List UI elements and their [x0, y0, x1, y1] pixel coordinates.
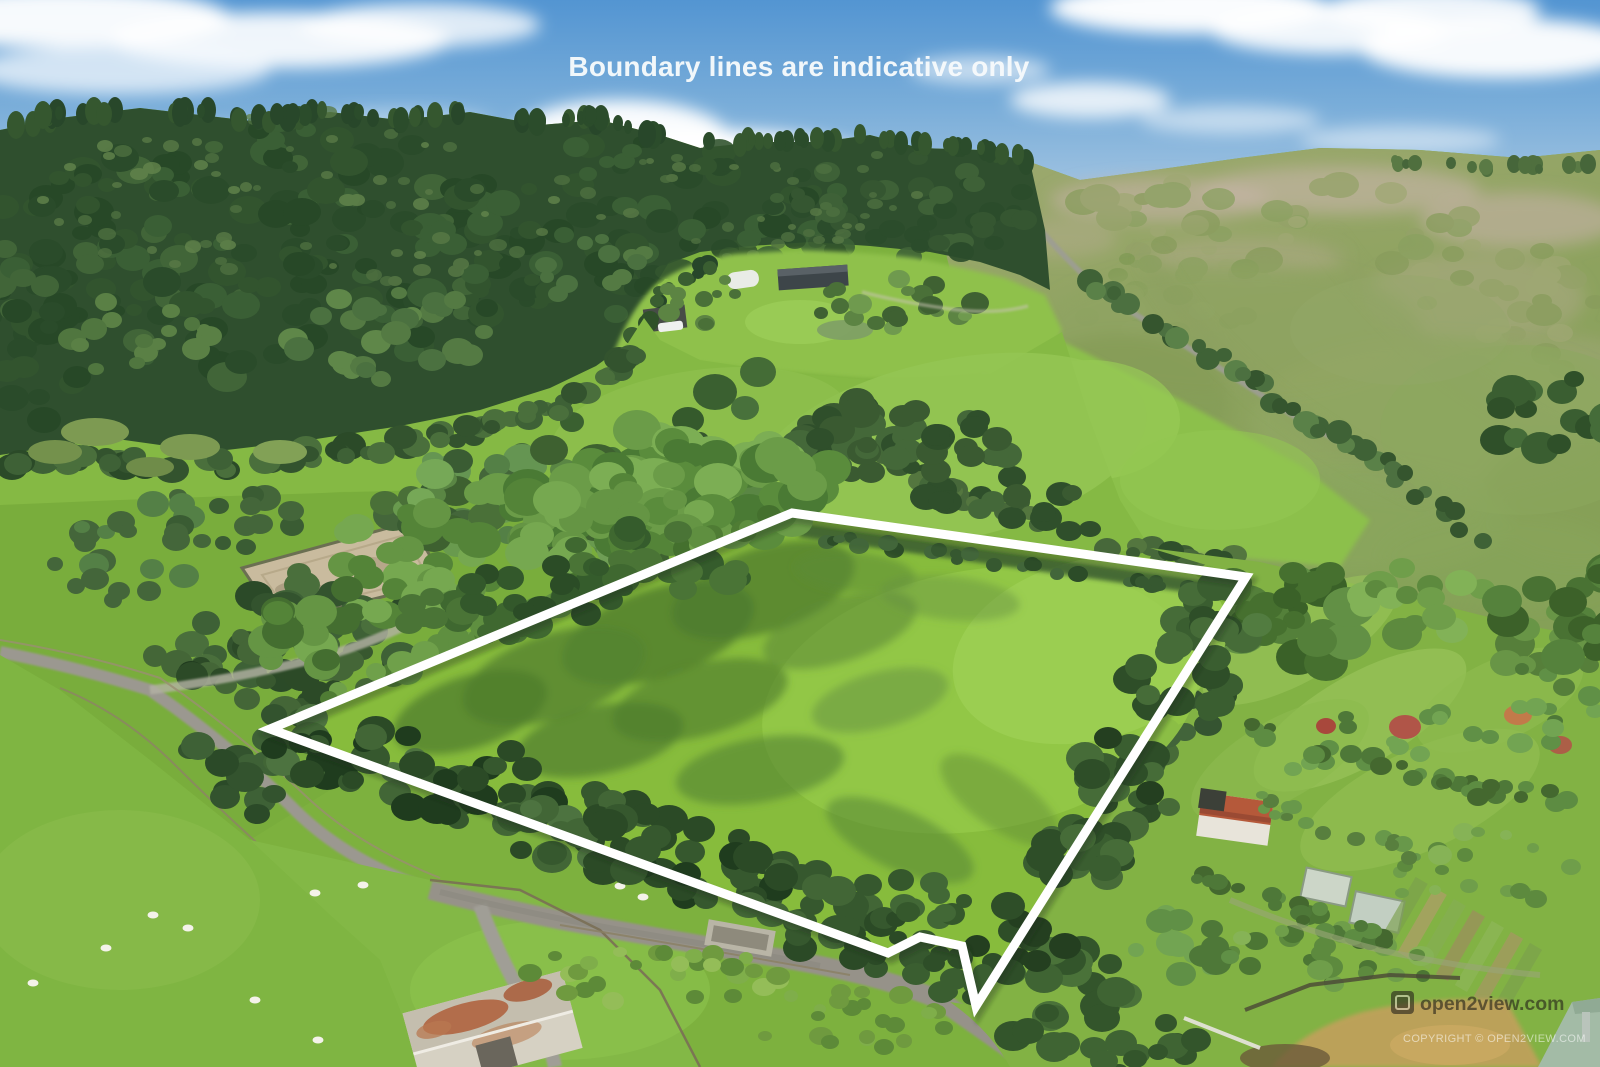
svg-text:COPYRIGHT © OPEN2VIEW.COM: COPYRIGHT © OPEN2VIEW.COM [1403, 1033, 1586, 1045]
svg-text:Boundary lines are indicative: Boundary lines are indicative only [568, 51, 1029, 82]
svg-text:open2view.com: open2view.com [1420, 993, 1565, 1015]
